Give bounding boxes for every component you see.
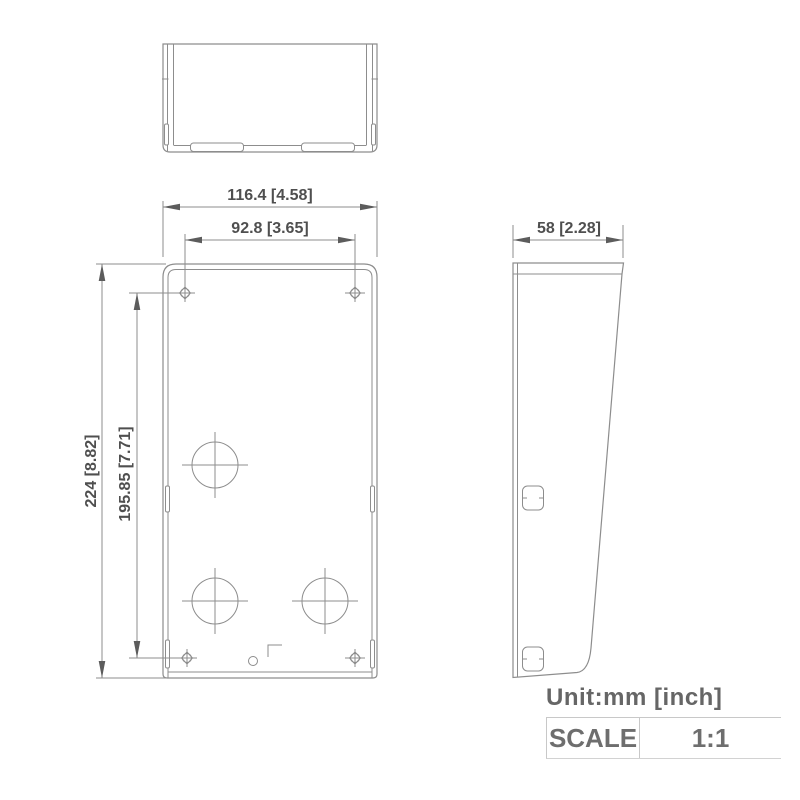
drawing-svg: 116.4 [4.58] 92.8 [3.65] 224 [8.82]: [0, 0, 800, 800]
front-view-right-bottom-tab: [371, 640, 375, 668]
mount-hole-top-right: [345, 284, 365, 302]
scale-label-cell: SCALE: [547, 718, 639, 758]
side-view: [513, 263, 624, 678]
top-view-slot-right: [302, 143, 355, 152]
dim-overall-width-label: 116.4 [4.58]: [227, 187, 312, 204]
front-view: [163, 264, 377, 678]
arrowhead-top: [134, 293, 141, 310]
side-view-outline: [513, 263, 624, 678]
top-view-left-tab: [165, 124, 169, 145]
pilot-hole: [249, 657, 258, 666]
dim-overall-height-label: 224 [8.82]: [83, 435, 100, 508]
front-view-left-bottom-tab: [166, 640, 170, 668]
dim-mount-width-label: 92.8 [3.65]: [231, 220, 308, 237]
arrowhead-top: [99, 264, 106, 281]
dim-mount-height: 195.85 [7.71]: [117, 293, 181, 658]
cable-hole-upper: [182, 432, 248, 498]
top-view-slot-left: [191, 143, 244, 152]
dim-depth: 58 [2.28]: [513, 220, 623, 258]
dim-mount-width: 92.8 [3.65]: [185, 220, 355, 286]
scale-value-cell: 1:1: [639, 718, 781, 758]
scale-table: SCALE 1:1: [546, 717, 781, 759]
arrowhead-left: [185, 237, 202, 244]
arrowhead-right: [606, 237, 623, 244]
side-view-square-hole-upper: [523, 486, 544, 510]
corner-mark: [268, 645, 282, 657]
arrowhead-bottom: [134, 641, 141, 658]
front-view-right-mid-tab: [371, 486, 375, 512]
arrowhead-right: [360, 204, 377, 211]
side-view-square-hole-lower: [523, 647, 544, 671]
cable-hole-lower-left: [182, 568, 248, 634]
arrowhead-left: [163, 204, 180, 211]
arrowhead-left: [513, 237, 530, 244]
arrowhead-right: [338, 237, 355, 244]
top-view: [162, 44, 378, 152]
dim-depth-label: 58 [2.28]: [537, 220, 601, 237]
top-view-right-tab: [372, 124, 376, 145]
engineering-drawing-canvas: 116.4 [4.58] 92.8 [3.65] 224 [8.82]: [0, 0, 800, 800]
unit-label: Unit:mm [inch]: [546, 684, 780, 712]
cable-hole-lower-right: [292, 568, 358, 634]
front-view-left-mid-tab: [166, 486, 170, 512]
front-view-outline: [163, 264, 377, 678]
arrowhead-bottom: [99, 661, 106, 678]
top-view-outline: [163, 44, 377, 152]
dim-mount-height-label: 195.85 [7.71]: [117, 426, 134, 521]
mount-hole-bottom-right: [345, 649, 365, 667]
